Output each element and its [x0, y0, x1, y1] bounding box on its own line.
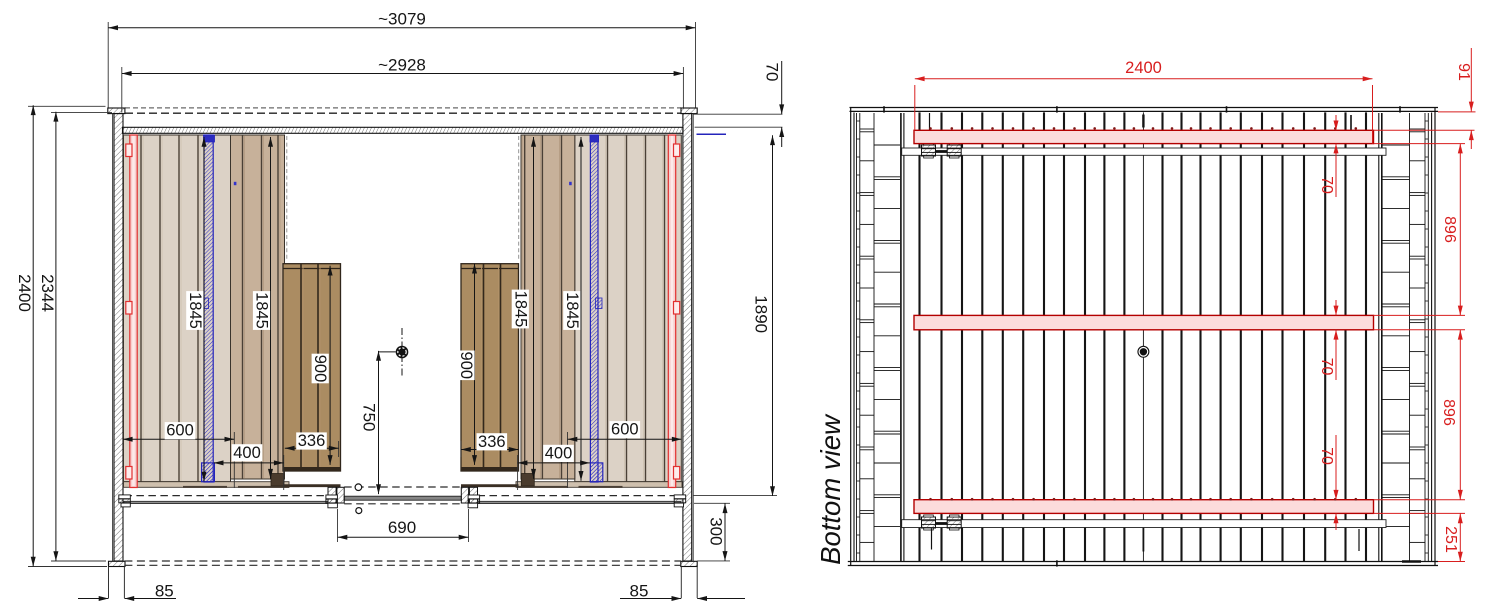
svg-text:1845: 1845: [511, 291, 529, 328]
svg-text:70: 70: [1318, 358, 1335, 376]
svg-text:91: 91: [1455, 63, 1472, 81]
svg-text:400: 400: [233, 444, 261, 462]
svg-text:70: 70: [763, 63, 782, 82]
svg-text:896: 896: [1441, 216, 1458, 243]
svg-text:900: 900: [311, 355, 329, 383]
svg-text:1845: 1845: [186, 292, 204, 329]
svg-text:Bottom view: Bottom view: [815, 413, 846, 565]
svg-text:690: 690: [388, 518, 416, 537]
svg-text:336: 336: [478, 433, 506, 451]
svg-text:400: 400: [545, 444, 573, 462]
svg-text:1890: 1890: [752, 295, 771, 333]
svg-text:85: 85: [155, 582, 174, 601]
svg-text:70: 70: [1318, 447, 1335, 465]
svg-text:251: 251: [1442, 526, 1459, 553]
svg-text:896: 896: [1440, 399, 1457, 426]
svg-text:900: 900: [457, 352, 475, 380]
svg-text:85: 85: [630, 582, 649, 601]
svg-text:70: 70: [1318, 176, 1335, 194]
svg-text:2400: 2400: [1125, 59, 1162, 77]
svg-text:750: 750: [359, 403, 378, 431]
svg-text:600: 600: [166, 422, 194, 440]
svg-text:~3079: ~3079: [378, 10, 426, 29]
svg-text:~2928: ~2928: [378, 55, 426, 74]
svg-text:300: 300: [706, 517, 725, 545]
svg-text:2344: 2344: [38, 274, 57, 312]
svg-text:600: 600: [611, 421, 639, 439]
svg-text:1845: 1845: [563, 292, 581, 329]
svg-text:336: 336: [298, 432, 326, 450]
svg-text:2400: 2400: [15, 274, 34, 312]
svg-text:1845: 1845: [253, 292, 271, 329]
